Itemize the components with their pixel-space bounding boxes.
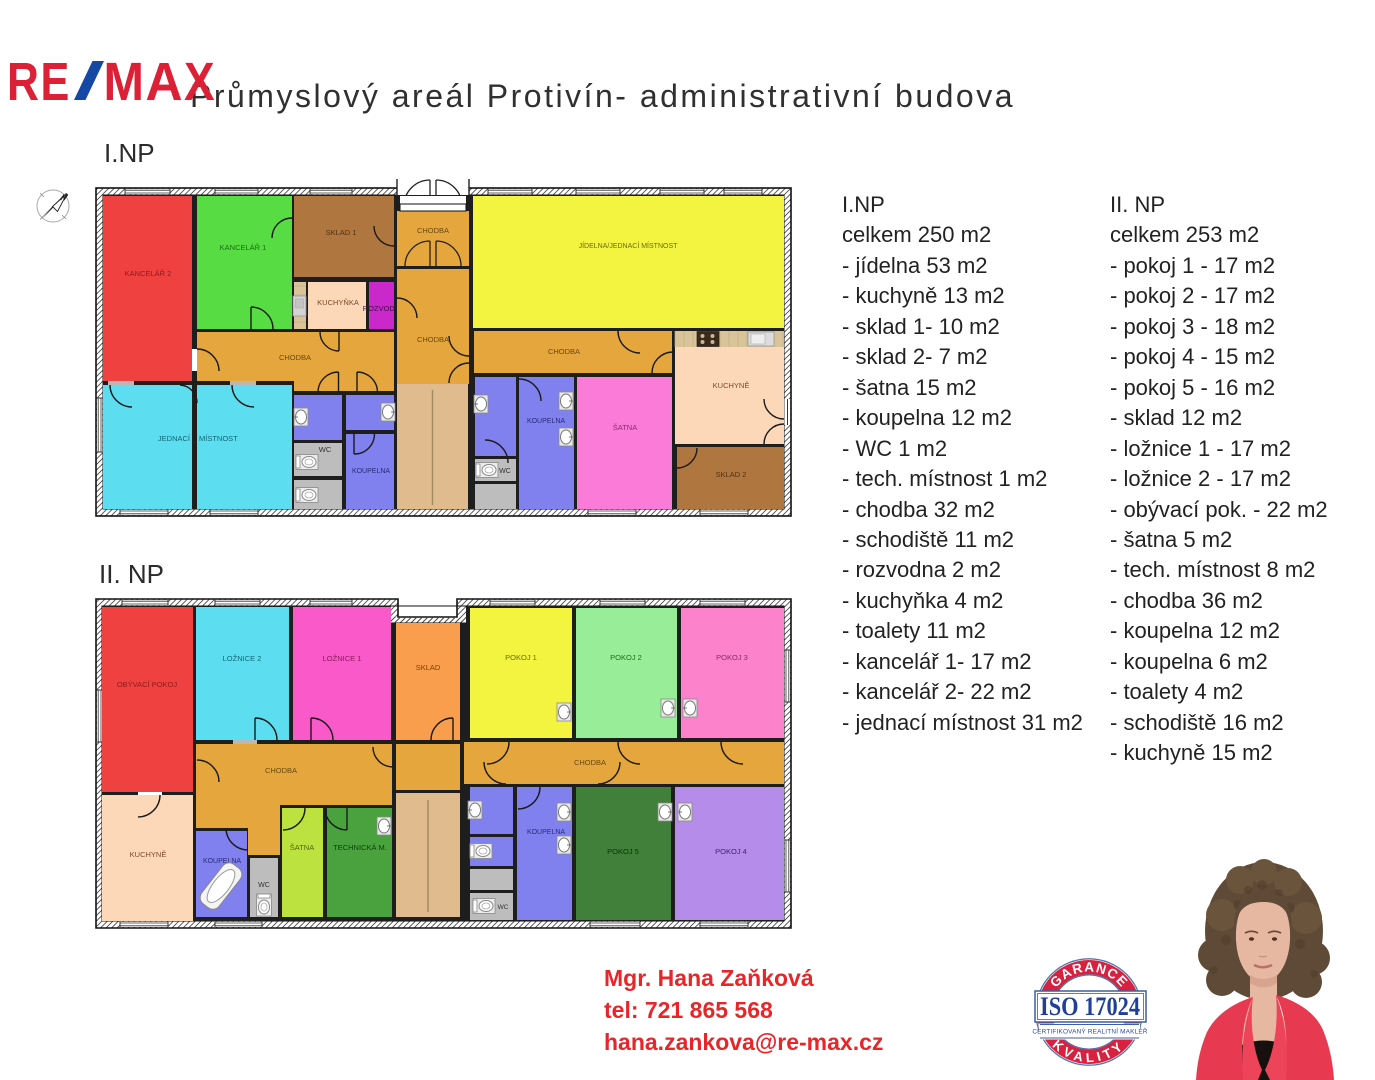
svg-text:LOŽNICE 2: LOŽNICE 2 [223, 654, 262, 663]
svg-text:WC: WC [258, 882, 270, 889]
svg-text:KOUPELNA: KOUPELNA [527, 829, 565, 836]
svg-text:OBÝVACÍ POKOJ: OBÝVACÍ POKOJ [117, 680, 178, 689]
svg-text:KOUPELNA: KOUPELNA [352, 468, 390, 475]
svg-text:CHODBA: CHODBA [417, 335, 449, 344]
svg-text:TECHNICKÁ M.: TECHNICKÁ M. [333, 843, 387, 852]
svg-text:JEDNACÍ: JEDNACÍ [158, 434, 191, 443]
svg-text:KUCHYNĚ: KUCHYNĚ [713, 381, 750, 390]
svg-text:SKLAD 2: SKLAD 2 [716, 470, 747, 479]
svg-text:KUCHYŇKA: KUCHYŇKA [317, 298, 359, 307]
svg-text:POKOJ 2: POKOJ 2 [610, 653, 642, 662]
svg-text:WC: WC [319, 445, 332, 454]
svg-text:POKOJ 3: POKOJ 3 [716, 653, 748, 662]
svg-text:ŠATNA: ŠATNA [290, 843, 314, 852]
svg-text:WC: WC [499, 468, 511, 475]
svg-text:POKOJ 1: POKOJ 1 [505, 653, 537, 662]
svg-text:ISO 17024: ISO 17024 [1040, 992, 1140, 1021]
svg-text:M: M [104, 51, 144, 112]
svg-text:MÍSTNOST: MÍSTNOST [199, 434, 238, 443]
svg-text:X: X [184, 52, 215, 112]
svg-text:KANCELÁŘ 1: KANCELÁŘ 1 [220, 243, 267, 252]
svg-text:KOUPELNA: KOUPELNA [527, 418, 565, 425]
svg-text:CHODBA: CHODBA [417, 226, 449, 235]
svg-text:CHODBA: CHODBA [265, 766, 297, 775]
svg-text:JÍDELNA/JEDNACÍ MÍSTNOST: JÍDELNA/JEDNACÍ MÍSTNOST [579, 241, 679, 250]
svg-text:POKOJ 5: POKOJ 5 [607, 847, 639, 856]
svg-text:CHODBA: CHODBA [279, 353, 311, 362]
svg-text:CHODBA: CHODBA [548, 347, 580, 356]
svg-text:SKLAD: SKLAD [416, 663, 441, 672]
svg-text:WC: WC [498, 904, 509, 911]
svg-text:LOŽNICE 1: LOŽNICE 1 [323, 654, 362, 663]
svg-text:SKLAD 1: SKLAD 1 [326, 228, 357, 237]
svg-text:CERTIFIKOVANÝ REALITNÍ MAKLÉŘ: CERTIFIKOVANÝ REALITNÍ MAKLÉŘ [1032, 1027, 1147, 1036]
svg-text:KOUPELNA: KOUPELNA [203, 858, 241, 865]
svg-text:A: A [146, 52, 183, 112]
svg-text:KANCELÁŘ 2: KANCELÁŘ 2 [125, 269, 172, 278]
svg-text:KUCHYNĚ: KUCHYNĚ [130, 850, 167, 859]
svg-text:R: R [7, 52, 39, 112]
svg-text:ŠATNA: ŠATNA [613, 423, 637, 432]
svg-text:POKOJ 4: POKOJ 4 [715, 847, 747, 856]
svg-text:E: E [41, 53, 70, 113]
svg-text:CHODBA: CHODBA [574, 758, 606, 767]
